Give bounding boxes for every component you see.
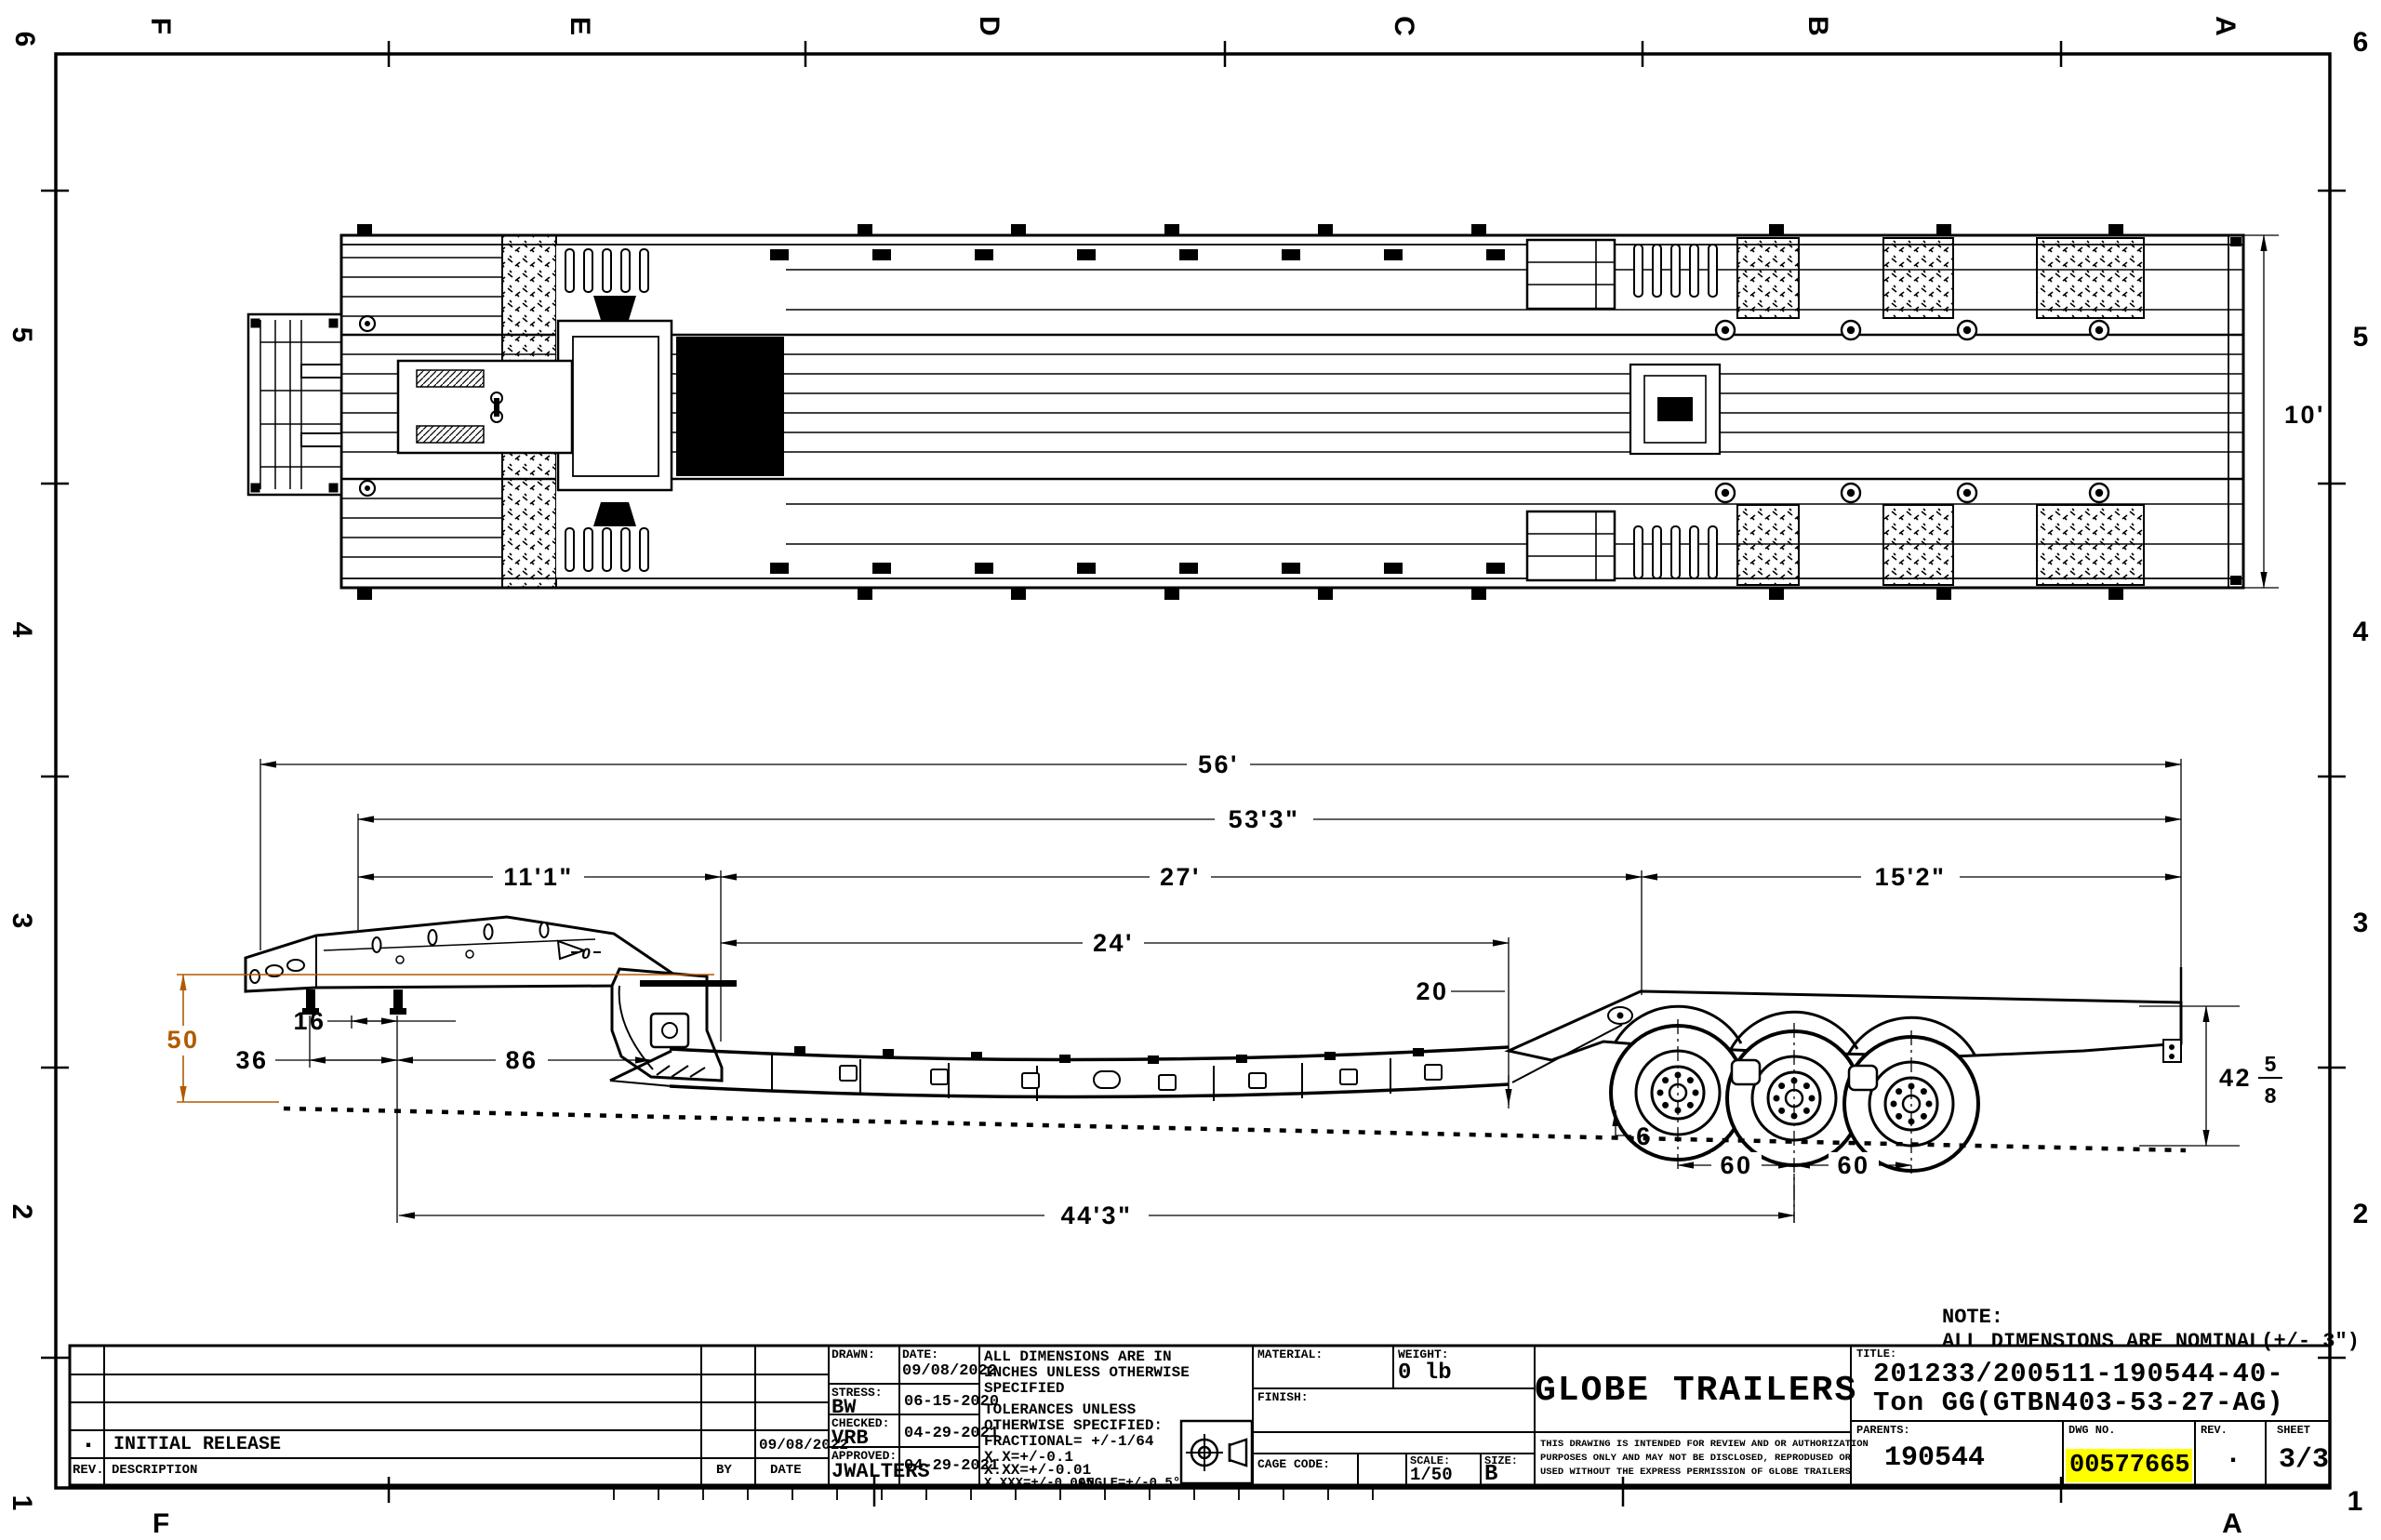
- dim-27: 27': [1160, 863, 1201, 891]
- title-line-1: 201233/200511-190544-40-: [1873, 1361, 2284, 1388]
- zone-left-6: 6: [9, 32, 40, 47]
- winch-well: [676, 337, 784, 476]
- drawing-sheet: { "zones": { "top_letters": ["F","E","D"…: [0, 0, 2381, 1540]
- tolerance-line-4: TOLERANCES UNLESS: [984, 1402, 1136, 1418]
- dim-60-b: 60: [1837, 1151, 1869, 1179]
- checked-name: VRB: [831, 1427, 869, 1449]
- company-name: GLOBE TRAILERS: [1535, 1373, 1851, 1410]
- zone-right-4: 4: [2353, 617, 2369, 647]
- dim-overall-length: 56': [1198, 750, 1239, 778]
- dim-42-whole: 42: [2219, 1064, 2252, 1092]
- zone-top-e: E: [565, 17, 595, 35]
- rev-label: REV.: [2201, 1425, 2228, 1437]
- kingpin-plate: [398, 361, 572, 453]
- third-angle-projection-icon: [1186, 1434, 1246, 1471]
- sheet-value: 3/3: [2279, 1446, 2329, 1476]
- zone-right-5: 5: [2353, 322, 2369, 352]
- dim-60-a: 60: [1720, 1151, 1752, 1179]
- zone-top-b: B: [1802, 16, 1833, 36]
- note-label: NOTE:: [1942, 1307, 2003, 1328]
- gooseneck-transition: [556, 246, 672, 577]
- disclaimer-line-1: THIS DRAWING IS INTENDED FOR REVIEW AND …: [1540, 1438, 1869, 1453]
- dim-15-2: 15'2": [1875, 863, 1947, 891]
- drawn-date-label: DATE:: [902, 1348, 938, 1361]
- rev-value: .: [2225, 1441, 2241, 1471]
- stress-name: BW: [831, 1397, 856, 1418]
- deck-well: [610, 1046, 1509, 1101]
- size-value: B: [1484, 1463, 1497, 1486]
- tolerance-line-6: FRACTIONAL= +/-1/64: [984, 1434, 1153, 1450]
- drawn-label: DRAWN:: [831, 1348, 875, 1361]
- zone-bottom-f: F: [153, 1508, 169, 1539]
- zone-left-1: 1: [7, 1495, 37, 1511]
- zone-left-4: 4: [7, 622, 37, 638]
- dim-10ft: 10': [2284, 401, 2325, 429]
- dim-16: 16: [293, 1007, 326, 1035]
- zone-right-6: 6: [2353, 27, 2369, 58]
- dim-6: 6: [1636, 1122, 1653, 1150]
- scale-value: 1/50: [1410, 1467, 1453, 1485]
- zone-top-c: C: [1389, 16, 1419, 36]
- dwg-no-value: 00577665: [2069, 1453, 2190, 1479]
- rear-bogie: [1509, 967, 2181, 1223]
- zone-left-5: 5: [7, 327, 37, 343]
- tolerance-line-9: X.XXX=+/-0.005: [984, 1476, 1094, 1492]
- weight-label: WEIGHT:: [1398, 1348, 1449, 1361]
- weight-value: 0 lb: [1398, 1361, 1452, 1385]
- zone-top-a: A: [2210, 16, 2241, 36]
- rev-row-mark: .: [80, 1427, 97, 1456]
- zone-right-2: 2: [2353, 1199, 2369, 1229]
- tolerance-line-3: SPECIFIED: [984, 1381, 1064, 1397]
- tolerance-line-1: ALL DIMENSIONS ARE IN: [984, 1349, 1172, 1365]
- zone-bottom-a: A: [2222, 1508, 2242, 1539]
- disclaimer-line-3: USED WITHOUT THE EXPRESS PERMISSION OF G…: [1540, 1466, 1851, 1480]
- rev-header-description: DESCRIPTION: [112, 1464, 197, 1478]
- weld-mark-text: 0: [581, 945, 591, 962]
- rev-header-rev: REV.: [73, 1464, 104, 1478]
- sheet-label: SHEET: [2277, 1425, 2310, 1437]
- material-label: MATERIAL:: [1257, 1348, 1323, 1361]
- dim-53-3: 53'3": [1229, 805, 1300, 833]
- zone-top-d: D: [974, 16, 1004, 36]
- dim-50: 50: [166, 1026, 199, 1054]
- finish-label: FINISH:: [1257, 1391, 1309, 1404]
- sheet-canvas: F E D C B A F A 6 5 4 3 2 1 6 5 4 3 2 1: [0, 0, 2381, 1540]
- tolerance-line-5: OTHERWISE SPECIFIED:: [984, 1418, 1163, 1434]
- dwg-no-label: DWG NO.: [2068, 1425, 2115, 1437]
- rev-header-date: DATE: [770, 1464, 802, 1478]
- dim-44-3: 44'3": [1061, 1201, 1133, 1229]
- dim-20: 20: [1416, 977, 1448, 1005]
- parents-label: PARENTS:: [1856, 1425, 1910, 1437]
- zone-left-3: 3: [7, 913, 37, 929]
- zone-top-f: F: [145, 18, 176, 34]
- dim-24: 24': [1093, 929, 1134, 957]
- cage-code-label: CAGE CODE:: [1257, 1458, 1330, 1471]
- disclaimer-line-2: PURPOSES ONLY AND MAY NOT BE DISCLOSED, …: [1540, 1452, 1851, 1467]
- rev-row-description: INITIAL RELEASE: [113, 1435, 281, 1454]
- tolerance-line-10: ANGLE=+/-0.5°: [1079, 1476, 1180, 1492]
- top-view-trailer-deck: [248, 224, 2243, 600]
- zone-right-3: 3: [2353, 908, 2369, 938]
- note-text: ALL DIMENSIONS ARE NOMINAL(+/- 3"): [1942, 1331, 2360, 1352]
- dim-42-num: 5: [2265, 1052, 2277, 1076]
- dim-11-1: 11'1": [503, 863, 573, 891]
- dim-36: 36: [235, 1046, 268, 1074]
- rev-header-by: BY: [716, 1464, 732, 1478]
- dim-86: 86: [505, 1046, 538, 1074]
- title-line-2: Ton GG(GTBN403-53-27-AG): [1873, 1389, 2284, 1417]
- parents-value: 190544: [1884, 1444, 1985, 1474]
- gooseneck-riser: [612, 969, 737, 1081]
- front-bumper-plan: [248, 314, 341, 495]
- tolerance-line-2: INCHES UNLESS OTHERWISE: [984, 1365, 1190, 1381]
- drawn-date: 09/08/2022: [902, 1363, 997, 1380]
- gooseneck: 0: [246, 917, 672, 1015]
- zone-left-2: 2: [7, 1204, 37, 1220]
- zone-right-1: 1: [2348, 1486, 2363, 1517]
- dim-42-den: 8: [2265, 1083, 2277, 1108]
